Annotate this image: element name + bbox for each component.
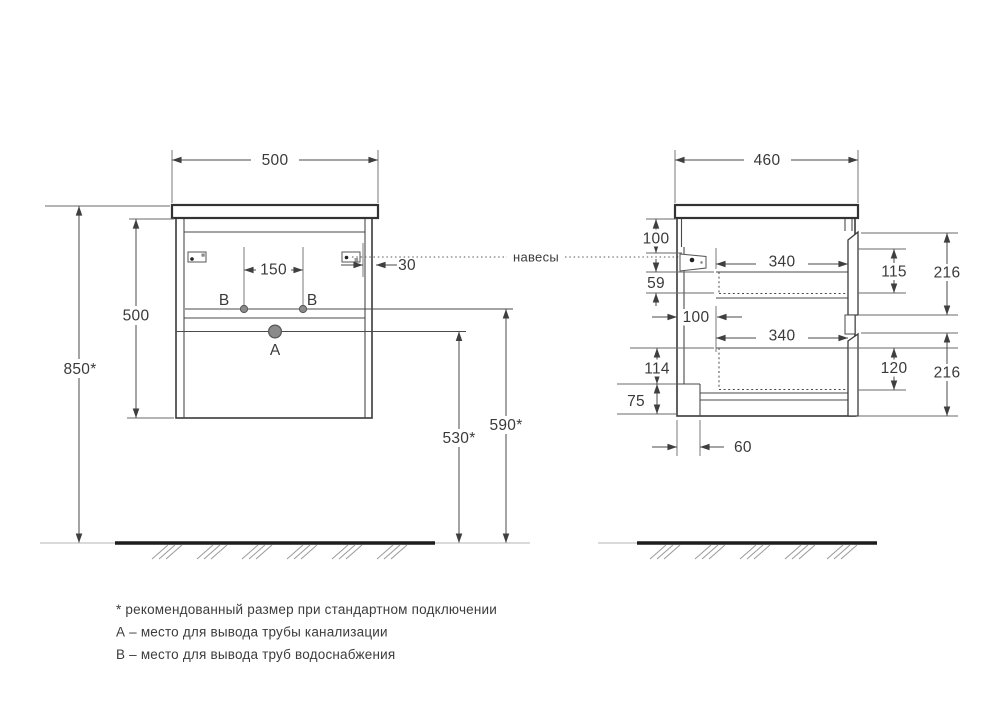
hanger-bracket-side-icon — [680, 254, 706, 271]
hanger-bracket-left-icon — [188, 252, 206, 262]
vanity-dimension-drawing: 500 850* 500 150 30 530* 590* B B A — [0, 0, 1000, 720]
footnotes: * рекомендованный размер при стандартном… — [116, 602, 497, 662]
dim-drawer-top-length: 340 — [769, 254, 796, 271]
dim-front-height: 500 — [123, 308, 150, 325]
dim-mount-height: 850* — [63, 361, 96, 378]
drawer-front-top-panel — [848, 232, 858, 315]
drawer-bottom-box — [716, 348, 848, 390]
dim-drawer-bottom-inner-height: 120 — [881, 360, 908, 377]
dim-drawer-bottom-length: 340 — [769, 328, 796, 345]
technical-drawing-page: 500 850* 500 150 30 530* 590* B B A — [0, 0, 1000, 720]
floor-hatch-right — [650, 545, 857, 559]
footnote-point-a: А – место для вывода трубы канализации — [116, 625, 388, 640]
footnote-point-b: В – место для вывода труб водоснабжения — [116, 647, 395, 662]
floor-line — [40, 543, 877, 559]
dim-recess-height: 75 — [627, 393, 645, 410]
dim-hanger-inset: 30 — [398, 257, 416, 274]
floor-hatch-left — [152, 545, 407, 559]
dim-drawer-top-front-height: 216 — [934, 265, 961, 282]
footnote-recommended-size: * рекомендованный размер при стандартном… — [116, 602, 497, 617]
point-b-left-label: B — [219, 292, 229, 309]
dim-drawer-top-inner-height: 115 — [881, 264, 907, 281]
dim-drawer-bottom-front-height: 216 — [934, 365, 961, 382]
dim-depth: 460 — [754, 152, 781, 169]
point-a-label: A — [270, 342, 281, 359]
hangers-label: навесы — [513, 250, 559, 265]
front-view-cabinet — [172, 205, 513, 418]
dim-recess-depth: 60 — [734, 439, 752, 456]
drawer-front-bottom-panel — [848, 334, 858, 416]
drawer-top-box — [716, 272, 848, 298]
point-b-left-dot — [240, 305, 247, 312]
countertop-front — [172, 205, 378, 218]
dim-supply-height: 590* — [489, 417, 522, 434]
dim-hanger-bottom-gap: 59 — [647, 275, 665, 292]
dim-hanger-top-offset: 100 — [643, 231, 670, 248]
countertop-side — [675, 205, 858, 218]
dim-drawer-back-gap: 100 — [683, 309, 710, 326]
dim-supply-spacing: 150 — [260, 262, 287, 279]
dim-back-bottom-offset: 114 — [644, 361, 670, 378]
point-b-right-label: B — [307, 292, 317, 309]
dim-front-width: 500 — [262, 152, 289, 169]
drawer-gap-rail — [845, 315, 855, 334]
dim-drain-height: 530* — [442, 430, 475, 447]
point-b-right-dot — [299, 305, 306, 312]
side-view-dimensions: 460 100 59 340 100 340 114 — [617, 150, 964, 456]
point-a-dot — [269, 325, 282, 338]
